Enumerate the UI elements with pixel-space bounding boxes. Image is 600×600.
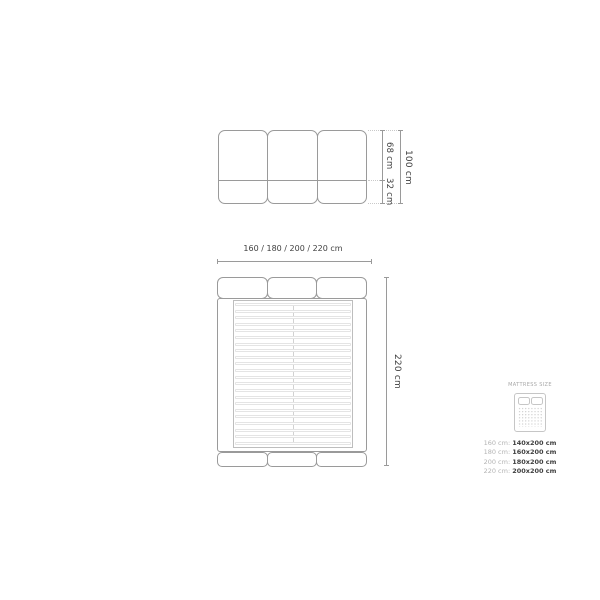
dimension-label-100cm: 100 cm	[401, 130, 415, 204]
footboard-tab-right	[316, 452, 367, 467]
mattress-tufting-dots	[518, 407, 542, 427]
headboard-front-view	[218, 130, 367, 204]
slat	[235, 396, 351, 399]
slat	[235, 323, 351, 326]
mattress-size-row: 220 cm: 200x200 cm	[472, 467, 568, 476]
bed-dimension-diagram: 68 cm 32 cm 100 cm 160 / 180 / 200 / 220…	[0, 0, 600, 600]
bed-width-label: 220 cm:	[484, 467, 513, 475]
mattress-icon	[514, 393, 546, 432]
footboard-tab-middle	[267, 452, 318, 467]
headboard-top-view	[217, 277, 367, 299]
slat	[235, 389, 351, 392]
mattress-size-value: 140x200 cm	[512, 439, 556, 447]
mattress-size-value: 180x200 cm	[512, 458, 556, 466]
headboard-seam-line	[218, 180, 367, 181]
bed-width-label: 160 cm:	[484, 439, 513, 447]
dimension-label-width: 160 / 180 / 200 / 220 cm	[218, 244, 368, 253]
slat	[235, 376, 351, 379]
slat	[235, 442, 351, 445]
mattress-size-table: 160 cm: 140x200 cm180 cm: 160x200 cm200 …	[472, 439, 568, 476]
slat	[235, 336, 351, 339]
slat	[235, 369, 351, 372]
pillow-icon	[531, 397, 543, 405]
slat	[235, 303, 351, 306]
slat-platform	[233, 300, 353, 448]
headboard-cushion-left	[218, 130, 268, 204]
dimension-label-68cm: 68 cm	[383, 130, 395, 181]
bed-width-label: 180 cm:	[484, 448, 513, 456]
headboard-tab-left	[217, 277, 268, 299]
slat	[235, 310, 351, 313]
slat	[235, 402, 351, 405]
headboard-tab-middle	[267, 277, 318, 299]
pillow-icon	[518, 397, 530, 405]
mattress-size-row: 160 cm: 140x200 cm	[472, 439, 568, 448]
mattress-size-title: MATTRESS SIZE	[492, 382, 568, 388]
mattress-size-value: 200x200 cm	[512, 467, 556, 475]
headboard-cushion-right	[317, 130, 367, 204]
footboard-tab-left	[217, 452, 268, 467]
slat-area	[235, 303, 351, 445]
slat	[235, 316, 351, 319]
dimension-line-length	[386, 277, 387, 466]
slat	[235, 409, 351, 412]
slat	[235, 415, 351, 418]
dimension-tick	[384, 277, 389, 278]
dimension-label-220cm: 220 cm	[390, 277, 404, 466]
slat	[235, 349, 351, 352]
slat	[235, 429, 351, 432]
slat	[235, 362, 351, 365]
dimension-tick	[217, 259, 218, 264]
dimension-line-width	[217, 261, 372, 262]
slat	[235, 356, 351, 359]
mattress-size-row: 200 cm: 180x200 cm	[472, 458, 568, 467]
slat	[235, 343, 351, 346]
headboard-cushion-middle	[267, 130, 317, 204]
mattress-size-value: 160x200 cm	[512, 448, 556, 456]
slat	[235, 382, 351, 385]
headboard-tab-right	[316, 277, 367, 299]
slat	[235, 422, 351, 425]
slat	[235, 329, 351, 332]
mattress-size-row: 180 cm: 160x200 cm	[472, 448, 568, 457]
dimension-label-32cm: 32 cm	[383, 178, 395, 205]
bed-width-label: 200 cm:	[484, 458, 513, 466]
dimension-tick	[384, 465, 389, 466]
footboard-top-view	[217, 452, 367, 467]
dimension-tick	[371, 259, 372, 264]
slat	[235, 435, 351, 438]
